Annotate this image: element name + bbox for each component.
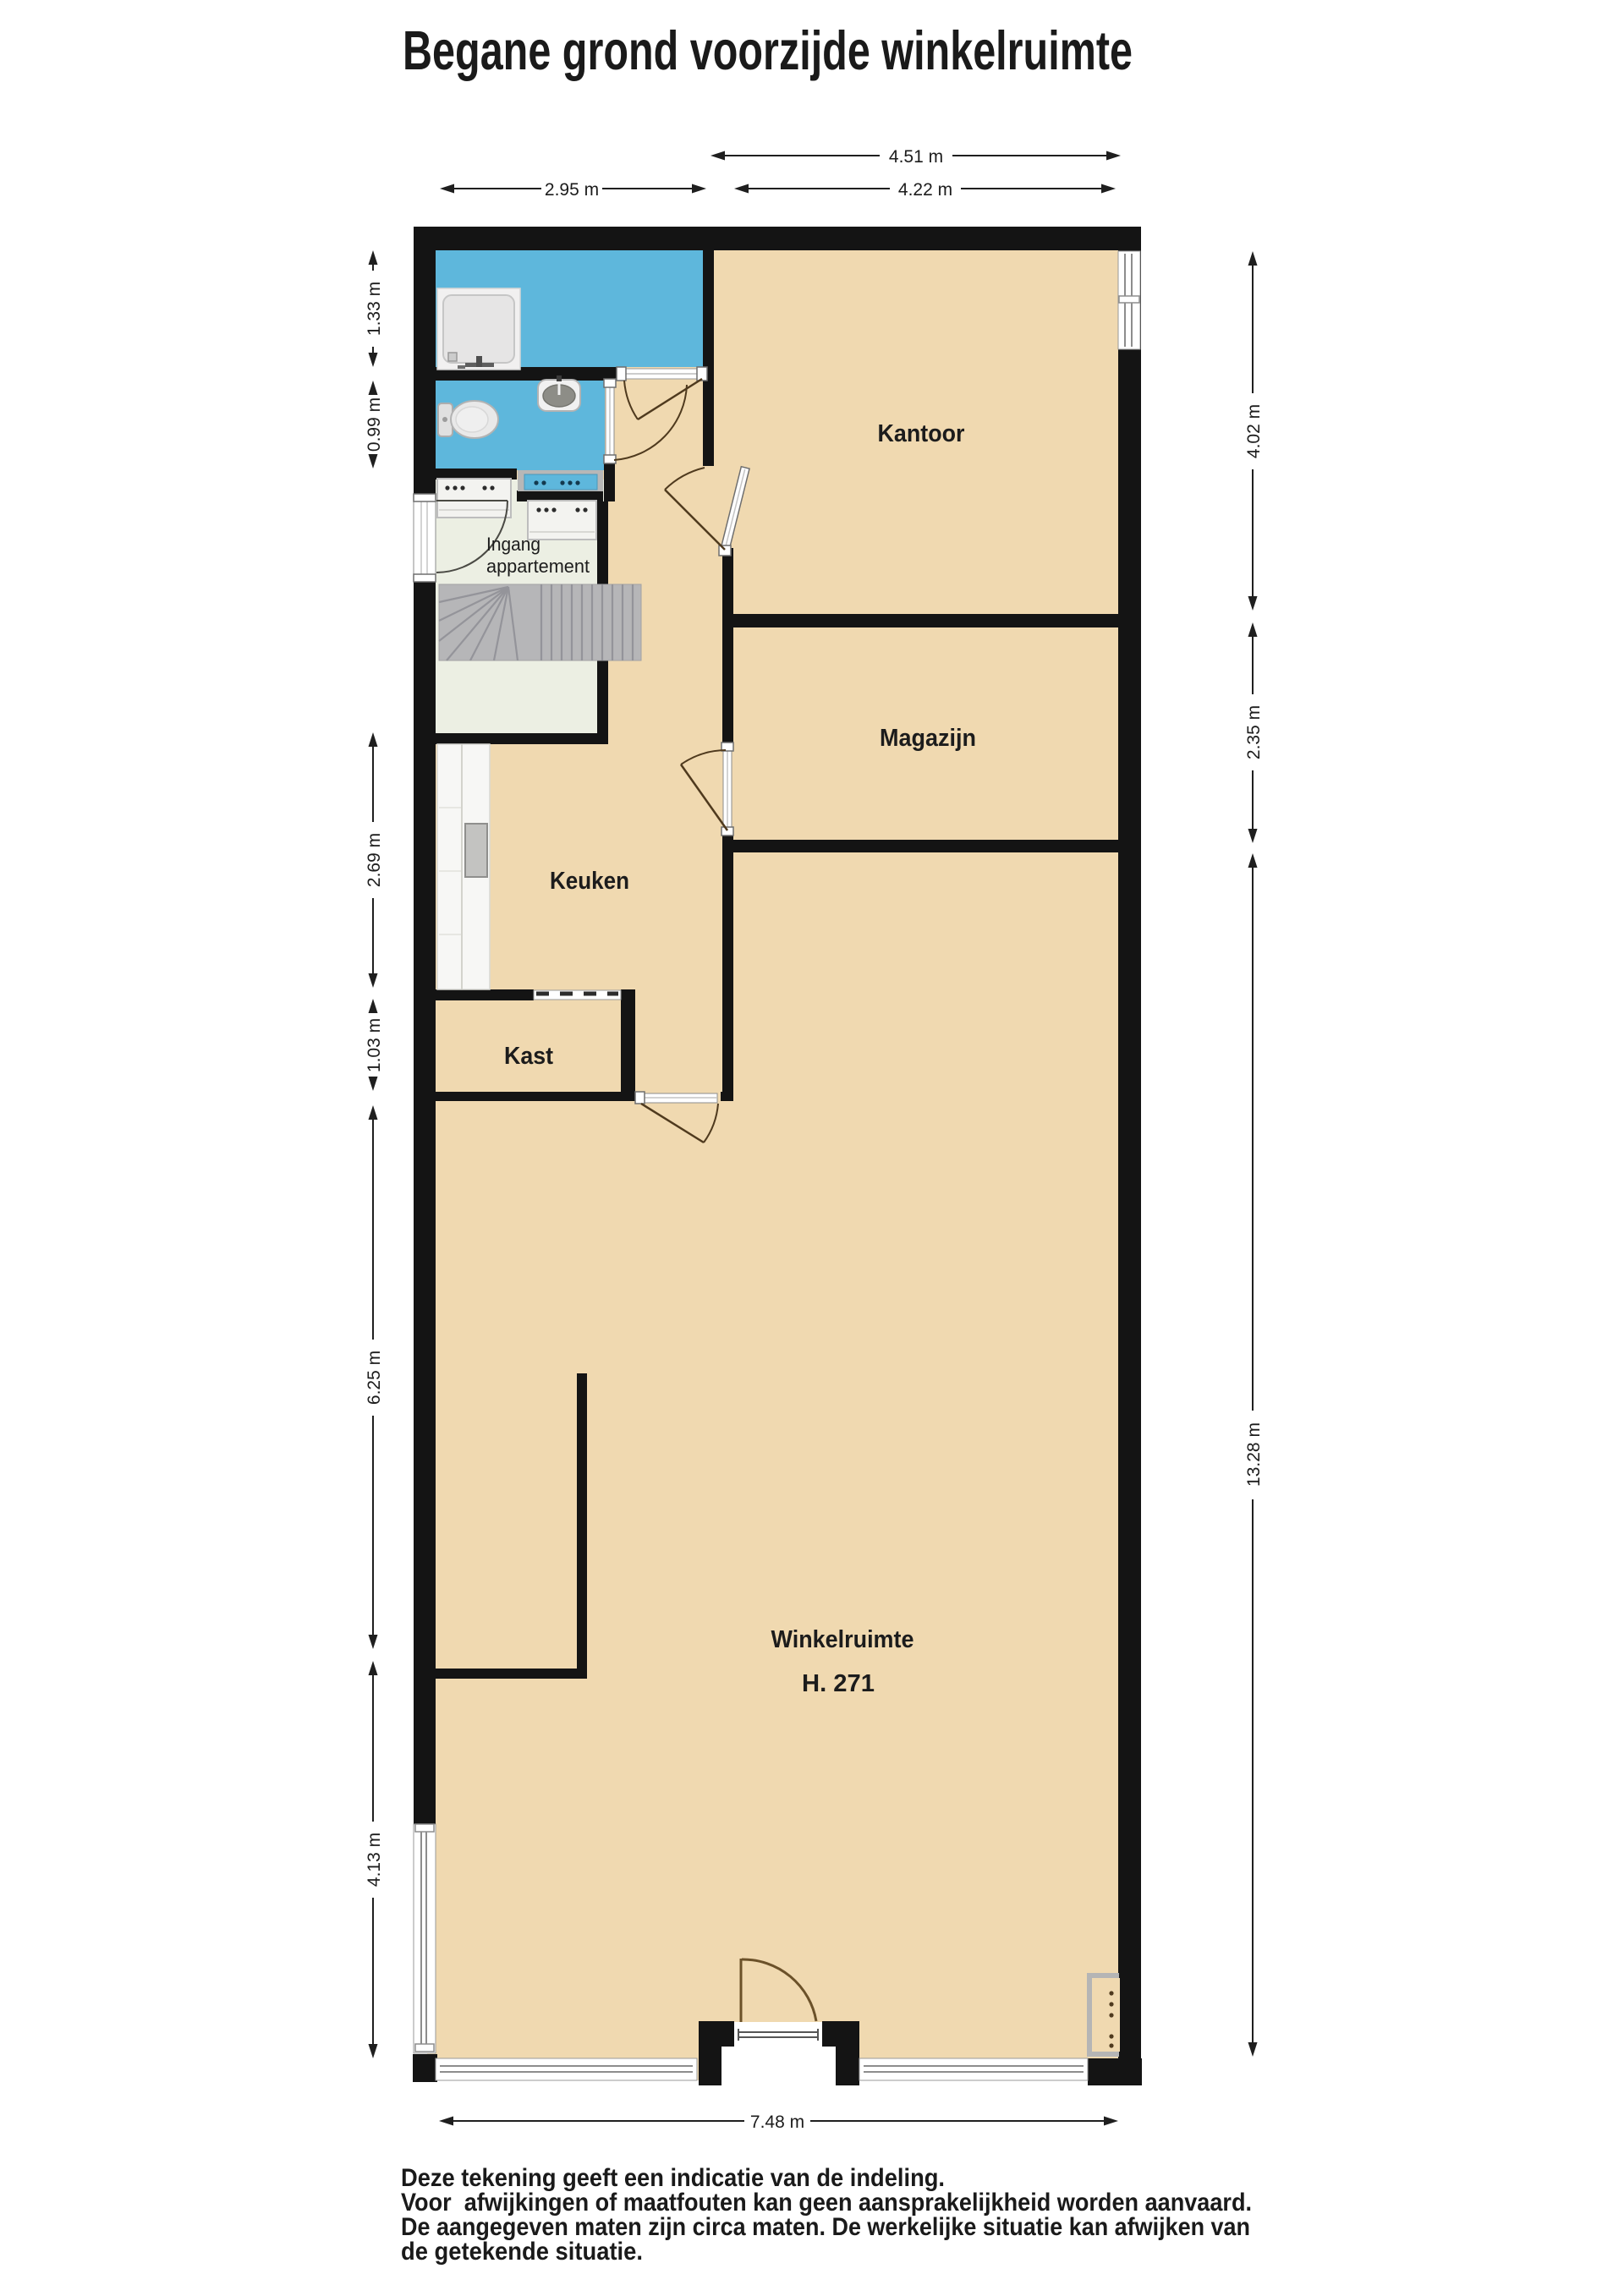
svg-text:Kast: Kast bbox=[504, 1043, 553, 1070]
svg-text:Ingang: Ingang bbox=[486, 534, 540, 555]
svg-text:13.28 m: 13.28 m bbox=[1244, 1422, 1264, 1487]
svg-text:4.22 m: 4.22 m bbox=[898, 180, 952, 200]
svg-text:Winkelruimte: Winkelruimte bbox=[771, 1626, 914, 1653]
svg-text:2.95 m: 2.95 m bbox=[545, 180, 599, 200]
svg-text:Begane grond voorzijde winkelr: Begane grond voorzijde winkelruimte bbox=[403, 19, 1133, 81]
svg-text:appartement: appartement bbox=[486, 556, 590, 577]
svg-text:2.35 m: 2.35 m bbox=[1244, 705, 1264, 759]
svg-text:H. 271: H. 271 bbox=[802, 1670, 875, 1697]
svg-text:7.48 m: 7.48 m bbox=[750, 2112, 804, 2132]
svg-text:1.33 m: 1.33 m bbox=[365, 282, 384, 336]
svg-text:0.99 m: 0.99 m bbox=[365, 397, 384, 452]
svg-text:Keuken: Keuken bbox=[550, 868, 629, 895]
svg-text:1.03 m: 1.03 m bbox=[365, 1018, 384, 1072]
svg-text:4.13 m: 4.13 m bbox=[365, 1833, 384, 1887]
svg-text:4.02 m: 4.02 m bbox=[1244, 404, 1264, 458]
svg-text:6.25 m: 6.25 m bbox=[365, 1351, 384, 1405]
svg-text:Kantoor: Kantoor bbox=[878, 420, 965, 447]
svg-text:Magazijn: Magazijn bbox=[880, 725, 976, 752]
svg-text:4.51 m: 4.51 m bbox=[889, 147, 943, 167]
svg-text:de getekende situatie.: de getekende situatie. bbox=[401, 2238, 643, 2266]
svg-text:2.69 m: 2.69 m bbox=[365, 833, 384, 887]
